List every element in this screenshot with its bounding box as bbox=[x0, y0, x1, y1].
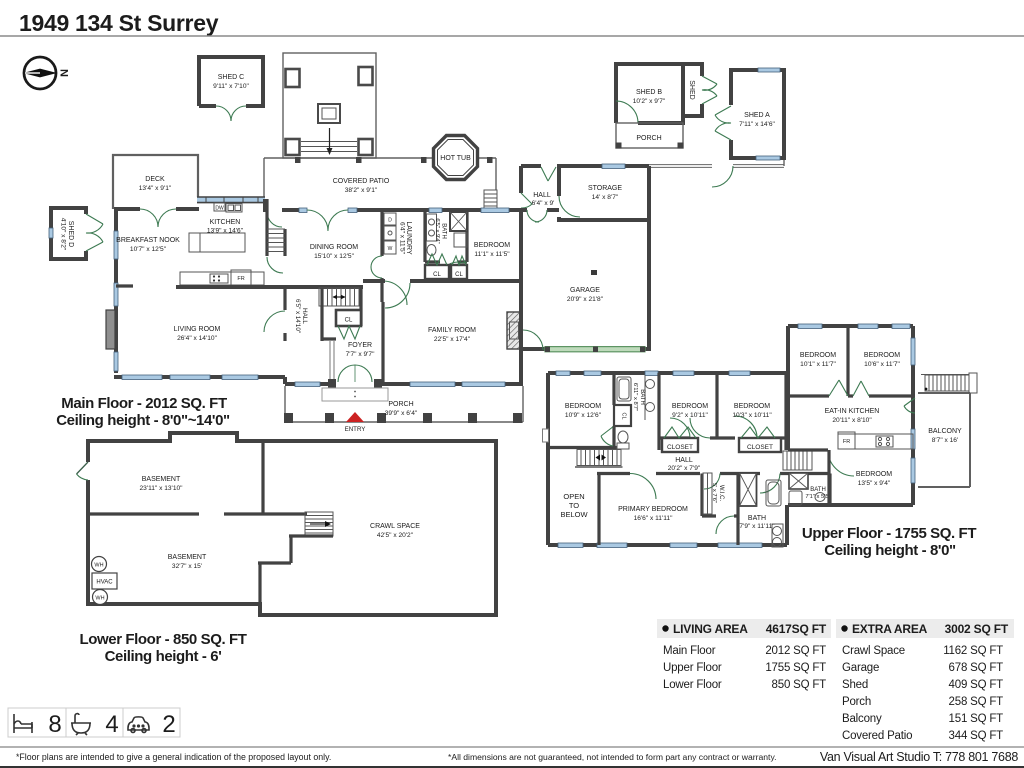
svg-text:Van Visual Art Studio T: 778 8: Van Visual Art Studio T: 778 801 7688 bbox=[820, 750, 1018, 764]
svg-text:6'4" x 11'5": 6'4" x 11'5" bbox=[399, 222, 406, 255]
svg-text:Balcony: Balcony bbox=[842, 713, 882, 725]
svg-text:BASEMENT: BASEMENT bbox=[168, 554, 207, 561]
svg-text:8'7" x 16': 8'7" x 16' bbox=[932, 437, 959, 444]
svg-text:13'9" x 14'6": 13'9" x 14'6" bbox=[207, 228, 244, 235]
svg-text:KITCHEN: KITCHEN bbox=[210, 219, 241, 226]
svg-text:Ceiling height - 8'0": Ceiling height - 8'0" bbox=[824, 542, 956, 559]
svg-text:CL: CL bbox=[345, 318, 353, 324]
svg-text:4617SQ FT: 4617SQ FT bbox=[766, 622, 827, 636]
svg-text:10'9" x 12'6": 10'9" x 12'6" bbox=[565, 412, 602, 419]
svg-text:EAT-IN KITCHEN: EAT-IN KITCHEN bbox=[825, 408, 880, 415]
svg-text:Lower Floor: Lower Floor bbox=[663, 679, 722, 691]
svg-text:5' x 7'6": 5' x 7'6" bbox=[711, 483, 717, 503]
svg-text:22'5" x 17'4": 22'5" x 17'4" bbox=[434, 336, 471, 343]
svg-text:EXTRA AREA: EXTRA AREA bbox=[852, 622, 928, 636]
svg-text:ENTRY: ENTRY bbox=[345, 426, 366, 433]
svg-text:GARAGE: GARAGE bbox=[570, 287, 600, 294]
svg-text:LIVING ROOM: LIVING ROOM bbox=[174, 326, 221, 333]
svg-text:151 SQ FT: 151 SQ FT bbox=[949, 713, 1004, 725]
svg-text:CL: CL bbox=[621, 412, 627, 419]
svg-text:678 SQ FT: 678 SQ FT bbox=[949, 662, 1004, 674]
svg-text:FR: FR bbox=[237, 276, 244, 282]
svg-text:Crawl Space: Crawl Space bbox=[842, 645, 905, 657]
svg-text:FAMILY ROOM: FAMILY ROOM bbox=[428, 327, 476, 334]
svg-text:Lower Floor - 850 SQ. FT: Lower Floor - 850 SQ. FT bbox=[79, 631, 246, 648]
svg-text:4'10" x 8'2": 4'10" x 8'2" bbox=[60, 218, 67, 251]
svg-text:409 SQ FT: 409 SQ FT bbox=[949, 679, 1004, 691]
svg-text:6'5" x 9'4": 6'5" x 9'4" bbox=[434, 218, 440, 243]
svg-text:15'10" x 12'5": 15'10" x 12'5" bbox=[314, 253, 354, 260]
svg-text:SHED D: SHED D bbox=[67, 221, 74, 247]
svg-text:20'2" x 7'9": 20'2" x 7'9" bbox=[668, 465, 701, 472]
svg-text:CRAWL SPACE: CRAWL SPACE bbox=[370, 523, 420, 530]
svg-text:LIVING AREA: LIVING AREA bbox=[673, 622, 748, 636]
svg-text:4: 4 bbox=[105, 711, 118, 738]
svg-text:TO: TO bbox=[569, 501, 579, 510]
svg-text:16'6" x 11'11": 16'6" x 11'11" bbox=[634, 515, 674, 522]
svg-text:Ceiling height - 6': Ceiling height - 6' bbox=[105, 648, 222, 665]
svg-text:Porch: Porch bbox=[842, 696, 871, 708]
svg-text:*All dimensions are not guaran: *All dimensions are not guaranteed, not … bbox=[448, 752, 777, 762]
svg-text:BEDROOM: BEDROOM bbox=[864, 352, 900, 359]
svg-text:HALL: HALL bbox=[533, 192, 551, 199]
svg-text:Ceiling height - 8'0"~14'0": Ceiling height - 8'0"~14'0" bbox=[56, 412, 230, 429]
svg-text:1755 SQ FT: 1755 SQ FT bbox=[765, 662, 826, 674]
svg-text:BATH: BATH bbox=[639, 389, 645, 405]
svg-text:Garage: Garage bbox=[842, 662, 879, 674]
svg-text:BATH: BATH bbox=[748, 515, 766, 522]
svg-text:SHED: SHED bbox=[688, 80, 695, 99]
svg-text:1162 SQ FT: 1162 SQ FT bbox=[943, 645, 1003, 657]
svg-text:2: 2 bbox=[162, 711, 175, 738]
svg-text:BALCONY: BALCONY bbox=[928, 428, 962, 435]
svg-text:10'2" x 9'7": 10'2" x 9'7" bbox=[633, 98, 666, 105]
svg-text:OPEN: OPEN bbox=[563, 492, 584, 501]
svg-text:WH: WH bbox=[95, 596, 104, 602]
svg-text:N: N bbox=[58, 69, 70, 77]
svg-text:Shed: Shed bbox=[842, 679, 868, 691]
svg-text:COVERED PATIO: COVERED PATIO bbox=[333, 178, 390, 185]
svg-text:BATH: BATH bbox=[810, 487, 826, 493]
svg-text:*Floor plans are intended to g: *Floor plans are intended to give a gene… bbox=[16, 752, 331, 762]
svg-text:STORAGE: STORAGE bbox=[588, 185, 622, 192]
svg-text:7'11" x 14'6": 7'11" x 14'6" bbox=[739, 121, 775, 128]
svg-text:BREAKFAST NOOK: BREAKFAST NOOK bbox=[116, 237, 180, 244]
svg-text:Main Floor - 2012 SQ. FT: Main Floor - 2012 SQ. FT bbox=[61, 395, 227, 412]
svg-text:WH: WH bbox=[94, 563, 103, 569]
svg-text:42'5" x 20'2": 42'5" x 20'2" bbox=[377, 532, 414, 539]
svg-text:9'2" x 10'11": 9'2" x 10'11" bbox=[672, 412, 708, 419]
svg-text:W.I.C.: W.I.C. bbox=[718, 485, 724, 502]
svg-text:10'1" x 11'7": 10'1" x 11'7" bbox=[800, 361, 836, 368]
svg-text:FOYER: FOYER bbox=[348, 342, 372, 349]
svg-text:14' x 8'7": 14' x 8'7" bbox=[592, 194, 619, 201]
svg-text:6'5" x 14'10": 6'5" x 14'10" bbox=[294, 299, 301, 333]
svg-text:CL: CL bbox=[455, 272, 463, 278]
svg-text:BEDROOM: BEDROOM bbox=[856, 471, 892, 478]
svg-text:BELOW: BELOW bbox=[560, 510, 588, 519]
svg-text:D: D bbox=[388, 218, 392, 224]
svg-text:13'5" x 9'4": 13'5" x 9'4" bbox=[858, 480, 891, 487]
svg-text:7'1" x 5'5": 7'1" x 5'5" bbox=[805, 494, 830, 500]
svg-text:BEDROOM: BEDROOM bbox=[672, 403, 708, 410]
svg-text:DINING ROOM: DINING ROOM bbox=[310, 244, 358, 251]
svg-text:13'4" x 9'1": 13'4" x 9'1" bbox=[139, 185, 172, 192]
svg-text:BEDROOM: BEDROOM bbox=[734, 403, 770, 410]
svg-text:HVAC: HVAC bbox=[96, 580, 113, 586]
svg-text:PORCH: PORCH bbox=[388, 401, 413, 408]
svg-text:Upper Floor: Upper Floor bbox=[663, 662, 722, 674]
svg-text:HALL: HALL bbox=[675, 457, 693, 464]
svg-text:7'9" x 11'11": 7'9" x 11'11" bbox=[739, 523, 775, 530]
svg-text:7'7" x 9'7": 7'7" x 9'7" bbox=[346, 351, 375, 358]
svg-text:26'4" x 14'10": 26'4" x 14'10" bbox=[177, 335, 217, 342]
svg-text:DW: DW bbox=[215, 206, 224, 212]
svg-text:23'11" x 13'10": 23'11" x 13'10" bbox=[139, 485, 183, 492]
svg-text:38'2" x 9'1": 38'2" x 9'1" bbox=[345, 187, 378, 194]
svg-text:3002 SQ FT: 3002 SQ FT bbox=[945, 622, 1009, 636]
svg-text:6'4" x 9': 6'4" x 9' bbox=[532, 200, 555, 207]
svg-text:11'1" x 11'5": 11'1" x 11'5" bbox=[474, 251, 510, 258]
svg-text:HALL: HALL bbox=[301, 308, 308, 324]
svg-text:FR: FR bbox=[843, 439, 850, 445]
svg-text:BASEMENT: BASEMENT bbox=[142, 476, 181, 483]
svg-text:10'6" x 11'7": 10'6" x 11'7" bbox=[864, 361, 900, 368]
svg-text:Main Floor: Main Floor bbox=[663, 645, 716, 657]
svg-text:HOT TUB: HOT TUB bbox=[440, 155, 471, 162]
svg-text:9'11" x 7'10": 9'11" x 7'10" bbox=[213, 83, 249, 90]
svg-text:CL: CL bbox=[433, 272, 441, 278]
svg-text:Upper Floor - 1755 SQ. FT: Upper Floor - 1755 SQ. FT bbox=[802, 525, 976, 542]
svg-text:6'11" x 8'7": 6'11" x 8'7" bbox=[632, 383, 638, 411]
svg-text:CLOSET: CLOSET bbox=[667, 444, 693, 451]
svg-text:39'9" x 6'4": 39'9" x 6'4" bbox=[385, 410, 418, 417]
svg-text:SHED B: SHED B bbox=[636, 89, 662, 96]
svg-text:DECK: DECK bbox=[145, 176, 165, 183]
svg-text:SHED C: SHED C bbox=[218, 74, 244, 81]
svg-text:BEDROOM: BEDROOM bbox=[565, 403, 601, 410]
svg-text:1949 134 St Surrey: 1949 134 St Surrey bbox=[19, 10, 219, 36]
svg-text:SHED A: SHED A bbox=[744, 112, 770, 119]
svg-text:344 SQ FT: 344 SQ FT bbox=[949, 730, 1004, 742]
svg-text:850 SQ FT: 850 SQ FT bbox=[772, 679, 827, 691]
svg-text:BEDROOM: BEDROOM bbox=[474, 242, 510, 249]
svg-text:CLOSET: CLOSET bbox=[747, 444, 773, 451]
svg-text:20'9" x 21'8": 20'9" x 21'8" bbox=[567, 296, 604, 303]
svg-text:8: 8 bbox=[48, 711, 61, 738]
svg-text:BATH: BATH bbox=[441, 223, 447, 239]
svg-text:20'11" x 8'10": 20'11" x 8'10" bbox=[832, 417, 872, 424]
svg-text:10'3" x 10'11": 10'3" x 10'11" bbox=[732, 412, 772, 419]
svg-text:258 SQ FT: 258 SQ FT bbox=[949, 696, 1004, 708]
svg-text:2012 SQ FT: 2012 SQ FT bbox=[765, 645, 826, 657]
svg-text:10'7" x 12'5": 10'7" x 12'5" bbox=[130, 246, 167, 253]
svg-text:PRIMARY BEDROOM: PRIMARY BEDROOM bbox=[618, 506, 688, 513]
svg-text:PORCH: PORCH bbox=[636, 135, 661, 142]
svg-text:BEDROOM: BEDROOM bbox=[800, 352, 836, 359]
svg-text:32'7" x 15': 32'7" x 15' bbox=[172, 563, 202, 570]
svg-text:W: W bbox=[388, 246, 393, 252]
svg-text:Covered Patio: Covered Patio bbox=[842, 730, 912, 742]
